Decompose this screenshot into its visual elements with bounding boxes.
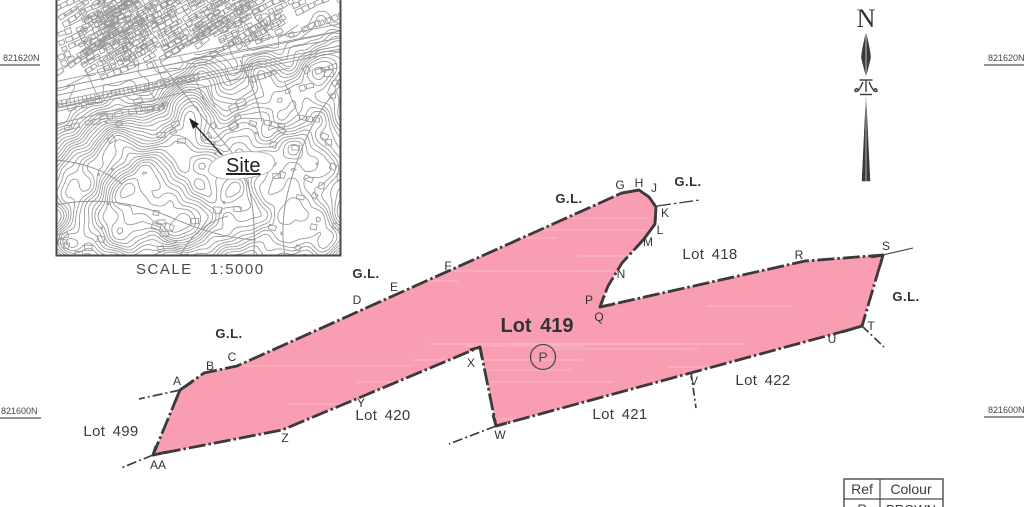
svg-text:Lot 420: Lot 420 — [355, 407, 410, 424]
svg-text:C: C — [228, 350, 237, 364]
svg-text:Lot 418: Lot 418 — [682, 246, 737, 263]
svg-text:S: S — [882, 239, 890, 253]
svg-text:H: H — [635, 176, 644, 190]
svg-text:Z: Z — [281, 431, 288, 445]
svg-text:Colour: Colour — [890, 481, 932, 497]
svg-text:P: P — [585, 293, 593, 307]
svg-text:X: X — [467, 356, 475, 370]
svg-text:AA: AA — [150, 458, 166, 472]
svg-text:SCALE 1:5000: SCALE 1:5000 — [136, 261, 265, 278]
svg-text:G.L.: G.L. — [892, 289, 919, 304]
svg-text:Q: Q — [594, 310, 603, 324]
svg-text:Ref: Ref — [851, 481, 873, 497]
svg-text:N: N — [857, 4, 876, 33]
svg-text:821600N: 821600N — [1, 406, 38, 416]
svg-text:B: B — [206, 359, 214, 373]
svg-text:F: F — [444, 259, 451, 273]
svg-text:G.L.: G.L. — [674, 174, 701, 189]
svg-text:V: V — [690, 374, 698, 388]
svg-text:G: G — [615, 178, 624, 192]
svg-text:Lot 499: Lot 499 — [83, 423, 138, 440]
svg-text:G.L.: G.L. — [555, 191, 582, 206]
svg-text:W: W — [494, 428, 506, 442]
svg-text:D: D — [353, 293, 362, 307]
svg-text:T: T — [867, 319, 875, 333]
svg-text:K: K — [661, 206, 669, 220]
svg-text:J: J — [651, 181, 657, 195]
svg-text:A: A — [173, 374, 181, 388]
svg-text:N: N — [617, 267, 626, 281]
svg-text:821600N: 821600N — [988, 405, 1024, 415]
svg-text:821620N: 821620N — [3, 53, 40, 63]
svg-text:M: M — [643, 235, 653, 249]
svg-text:Site: Site — [226, 155, 260, 177]
svg-text:821620N: 821620N — [988, 53, 1024, 63]
svg-text:G.L.: G.L. — [352, 266, 379, 281]
svg-text:U: U — [828, 332, 837, 346]
svg-text:G.L.: G.L. — [215, 326, 242, 341]
svg-text:BROWN: BROWN — [886, 502, 936, 507]
svg-text:R: R — [795, 248, 804, 262]
svg-text:P: P — [857, 501, 866, 507]
svg-text:L: L — [657, 223, 664, 237]
svg-text:E: E — [390, 280, 398, 294]
svg-text:Lot 421: Lot 421 — [592, 406, 647, 423]
svg-text:P: P — [538, 349, 547, 365]
svg-text:Lot 422: Lot 422 — [735, 372, 790, 389]
svg-text:Lot 419: Lot 419 — [500, 315, 573, 337]
